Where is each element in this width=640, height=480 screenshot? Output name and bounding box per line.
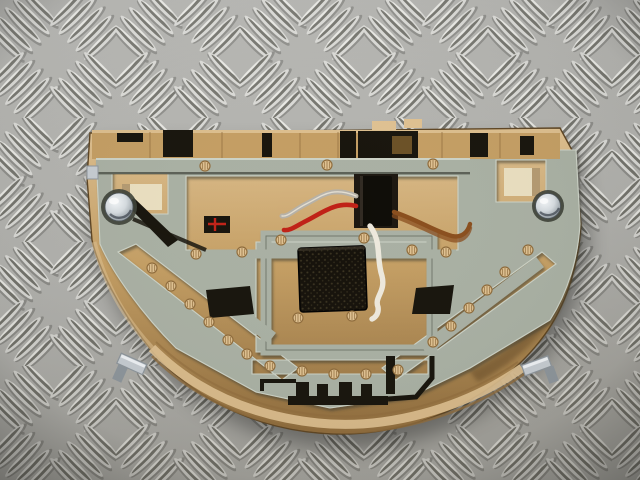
scene-canvas	[0, 0, 640, 480]
photo-dome-light-on-checker-plate	[0, 0, 640, 480]
vignette	[0, 0, 640, 480]
